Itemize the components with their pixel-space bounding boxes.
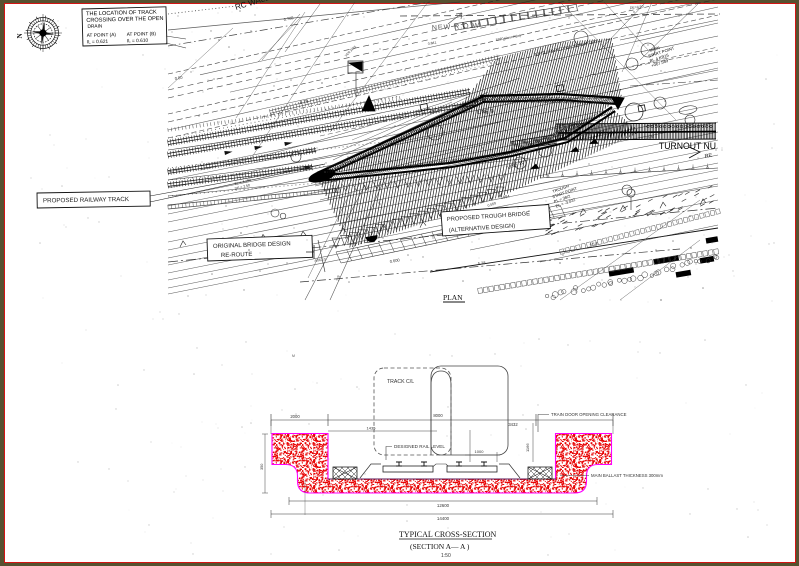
- svg-text:TURNOUT NU: TURNOUT NU: [659, 141, 716, 152]
- svg-text:8000: 8000: [433, 413, 443, 418]
- svg-text:-5063.0: -5063.0: [314, 257, 326, 263]
- svg-text:AT POINT (A): AT POINT (A): [87, 32, 117, 39]
- svg-text:DRAIN: DRAIN: [87, 23, 103, 29]
- svg-text:0.80: 0.80: [174, 75, 183, 81]
- svg-text:12600: 12600: [437, 503, 450, 508]
- svg-text:2.9: 2.9: [336, 275, 341, 281]
- svg-text:AT POINT (B): AT POINT (B): [127, 31, 157, 38]
- svg-text:1435: 1435: [367, 426, 377, 431]
- svg-text:0.785: 0.785: [283, 15, 295, 22]
- svg-text:M: M: [292, 354, 295, 358]
- svg-text:350: 350: [260, 464, 264, 470]
- svg-text:1894: 1894: [429, 108, 439, 115]
- svg-text:IL = 0.621: IL = 0.621: [87, 39, 109, 46]
- svg-text:TRAIN DOOR OPENING CLEARANCE: TRAIN DOOR OPENING CLEARANCE: [551, 412, 627, 417]
- svg-text:1.532: 1.532: [645, 134, 655, 141]
- svg-text:DESIGNED RAIL LEVEL: DESIGNED RAIL LEVEL: [394, 444, 445, 449]
- svg-text:VER 3481: VER 3481: [344, 44, 357, 57]
- svg-text:RC WALL: RC WALL: [234, 0, 271, 12]
- svg-text:TYPICAL CROSS-SECTION: TYPICAL CROSS-SECTION: [399, 530, 496, 539]
- svg-text:1:50: 1:50: [441, 553, 451, 559]
- svg-text:5.28: 5.28: [477, 260, 486, 266]
- svg-text:2000: 2000: [290, 414, 300, 419]
- svg-text:0.600: 0.600: [389, 257, 400, 264]
- svg-text:1000: 1000: [475, 449, 485, 454]
- svg-text:TRACK C/L: TRACK C/L: [387, 379, 414, 385]
- svg-text:LINE 9: LINE 9: [477, 109, 494, 116]
- svg-text:0.559: 0.559: [487, 201, 497, 208]
- svg-text:RE: RE: [704, 153, 713, 160]
- svg-text:(SECTION A— A ): (SECTION A— A ): [410, 542, 470, 551]
- svg-text:1166: 1166: [525, 443, 530, 452]
- svg-text:3432: 3432: [508, 422, 518, 427]
- svg-text:RE-ROUTE: RE-ROUTE: [221, 252, 253, 259]
- svg-text:1894: 1894: [500, 193, 510, 200]
- svg-text:PLAN: PLAN: [443, 293, 463, 302]
- svg-text:6.75: 6.75: [299, 98, 309, 105]
- svg-text:MAIN BALLAST THICKNESS 300mm: MAIN BALLAST THICKNESS 300mm: [591, 473, 663, 478]
- svg-text:IL = 0.610: IL = 0.610: [127, 38, 149, 45]
- svg-text:DE=4.50: DE=4.50: [630, 5, 644, 10]
- svg-text:14400: 14400: [437, 516, 450, 521]
- svg-text:N: N: [16, 33, 24, 38]
- svg-text:5280 (river KBs): 5280 (river KBs): [495, 34, 521, 42]
